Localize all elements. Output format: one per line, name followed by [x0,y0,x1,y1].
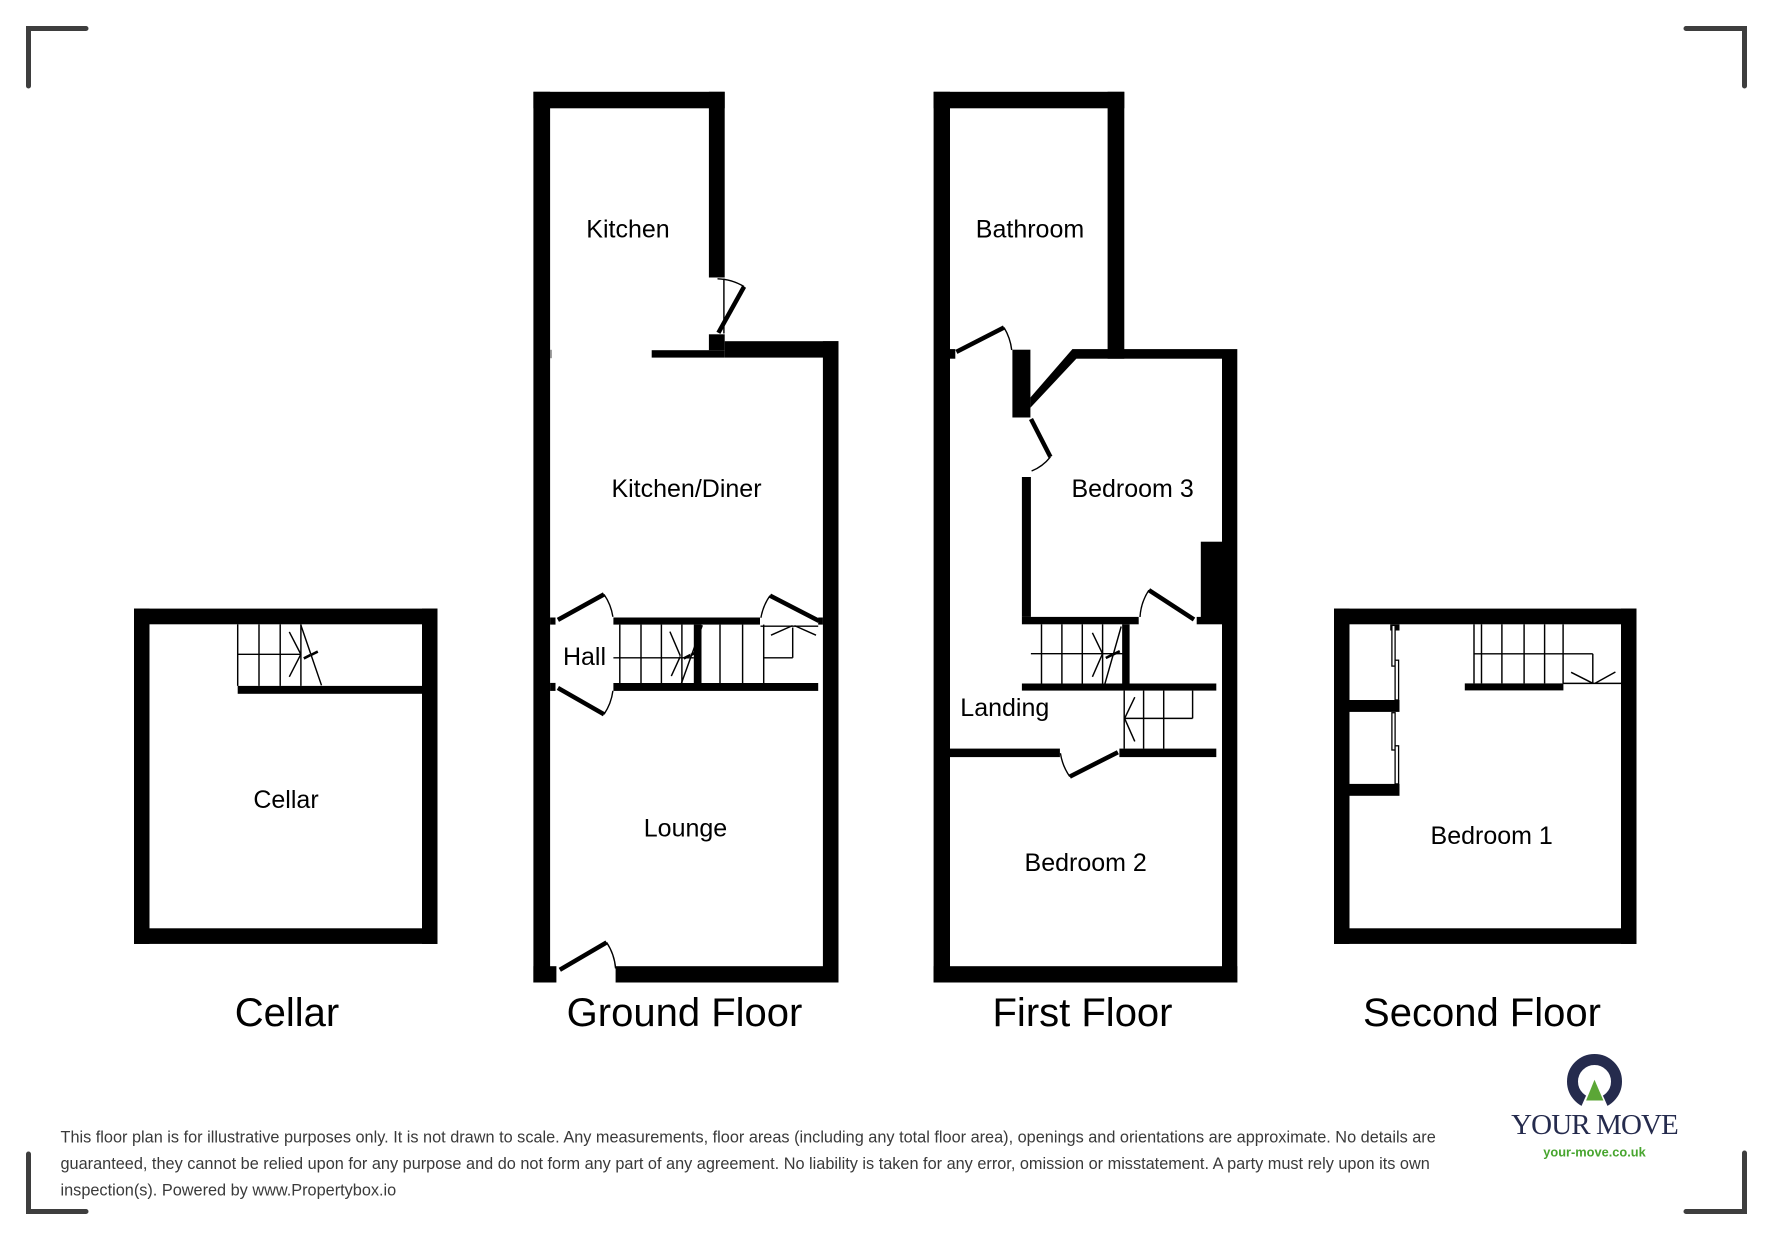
svg-text:your-move.co.uk: your-move.co.uk [1543,1145,1646,1160]
svg-text:Bedroom 3: Bedroom 3 [1071,475,1193,503]
svg-text:This floor plan is for illustr: This floor plan is for illustrative purp… [61,1129,1436,1147]
svg-text:Cellar: Cellar [253,786,318,814]
svg-text:Ground Floor: Ground Floor [567,991,803,1035]
svg-text:Kitchen: Kitchen [586,216,669,244]
svg-text:Hall: Hall [563,643,606,671]
svg-text:Kitchen/Diner: Kitchen/Diner [611,475,761,503]
svg-text:inspection(s). Powered by www.: inspection(s). Powered by www.Propertybo… [61,1182,397,1200]
svg-text:Bedroom 2: Bedroom 2 [1025,849,1147,877]
svg-text:Bathroom: Bathroom [976,216,1084,244]
svg-text:guaranteed, they cannot be rel: guaranteed, they cannot be relied upon f… [61,1155,1430,1173]
svg-text:Second Floor: Second Floor [1363,991,1601,1035]
svg-text:Cellar: Cellar [235,991,339,1035]
svg-text:Lounge: Lounge [644,815,727,843]
svg-text:YOUR MOVE: YOUR MOVE [1511,1109,1678,1141]
svg-text:Landing: Landing [960,694,1049,722]
svg-text:First Floor: First Floor [993,991,1173,1035]
svg-text:Bedroom 1: Bedroom 1 [1431,822,1553,850]
